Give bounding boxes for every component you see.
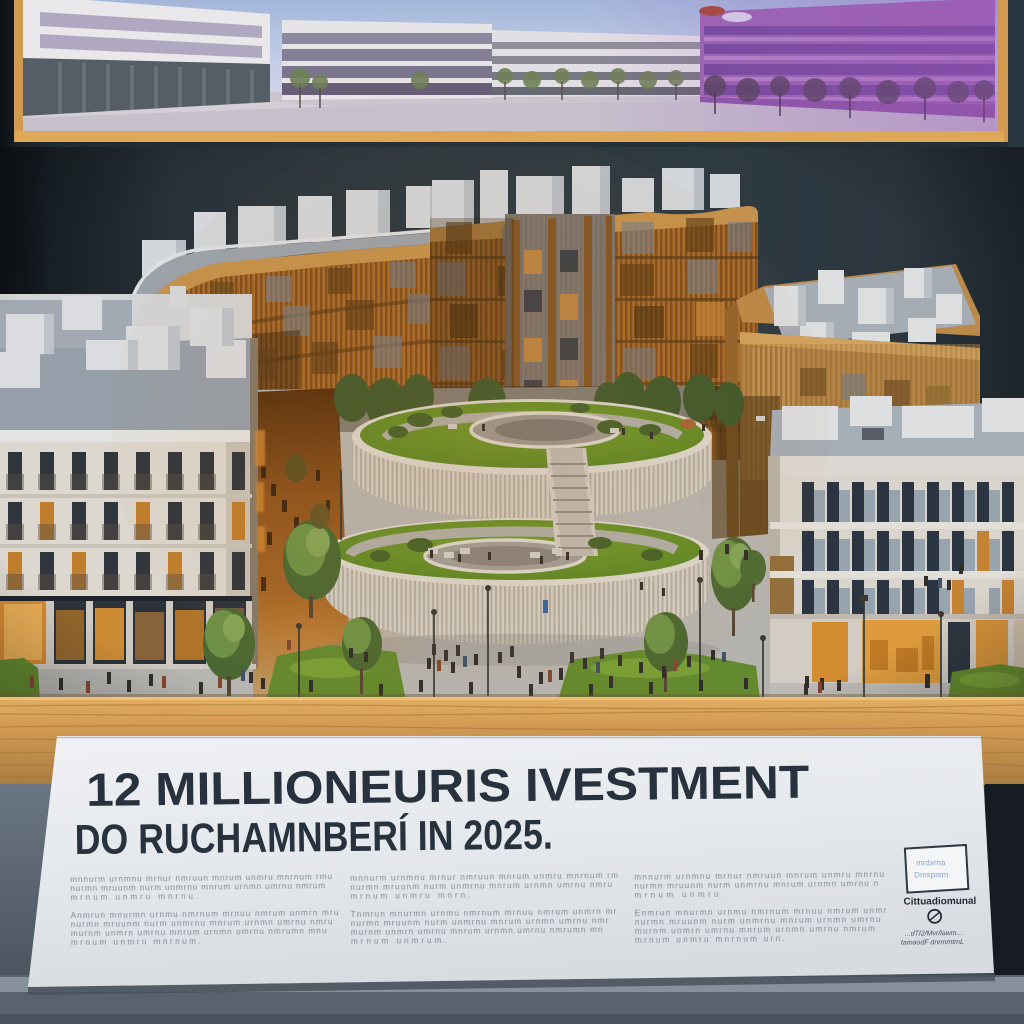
svg-text:Dmspsrm: Dmspsrm <box>914 870 949 879</box>
svg-text:12 MILLIONEURIS IVESTMENT: 12 MILLIONEURIS IVESTMENT <box>86 756 810 816</box>
svg-text:DO RUCHAMNBERÍ IN 2025.: DO RUCHAMNBERÍ IN 2025. <box>74 811 553 863</box>
svg-text:mrdxrna: mrdxrna <box>916 858 946 867</box>
svg-text:...dTI2/Mvr/lawm...: ...dTI2/Mvr/lawm... <box>905 930 963 938</box>
svg-text:tamaodF dnrmmtmL: tamaodF dnrmmtmL <box>901 939 964 947</box>
svg-text:Cіttuadіomunal: Cіttuadіomunal <box>903 896 976 908</box>
